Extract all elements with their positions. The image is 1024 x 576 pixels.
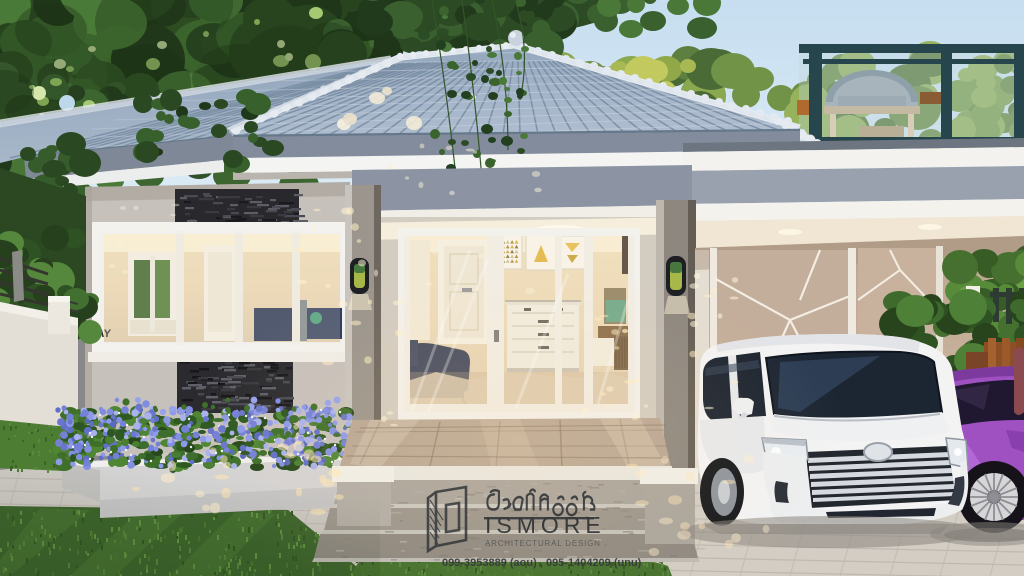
svg-text:099-3953889 (aou) , 095-140420: 099-3953889 (aou) , 095-1404209 (unu) [442, 557, 642, 569]
svg-text:ARCHITECTURAL DESIGN: ARCHITECTURAL DESIGN [485, 539, 601, 548]
svg-text:ISMORE: ISMORE [485, 512, 606, 538]
